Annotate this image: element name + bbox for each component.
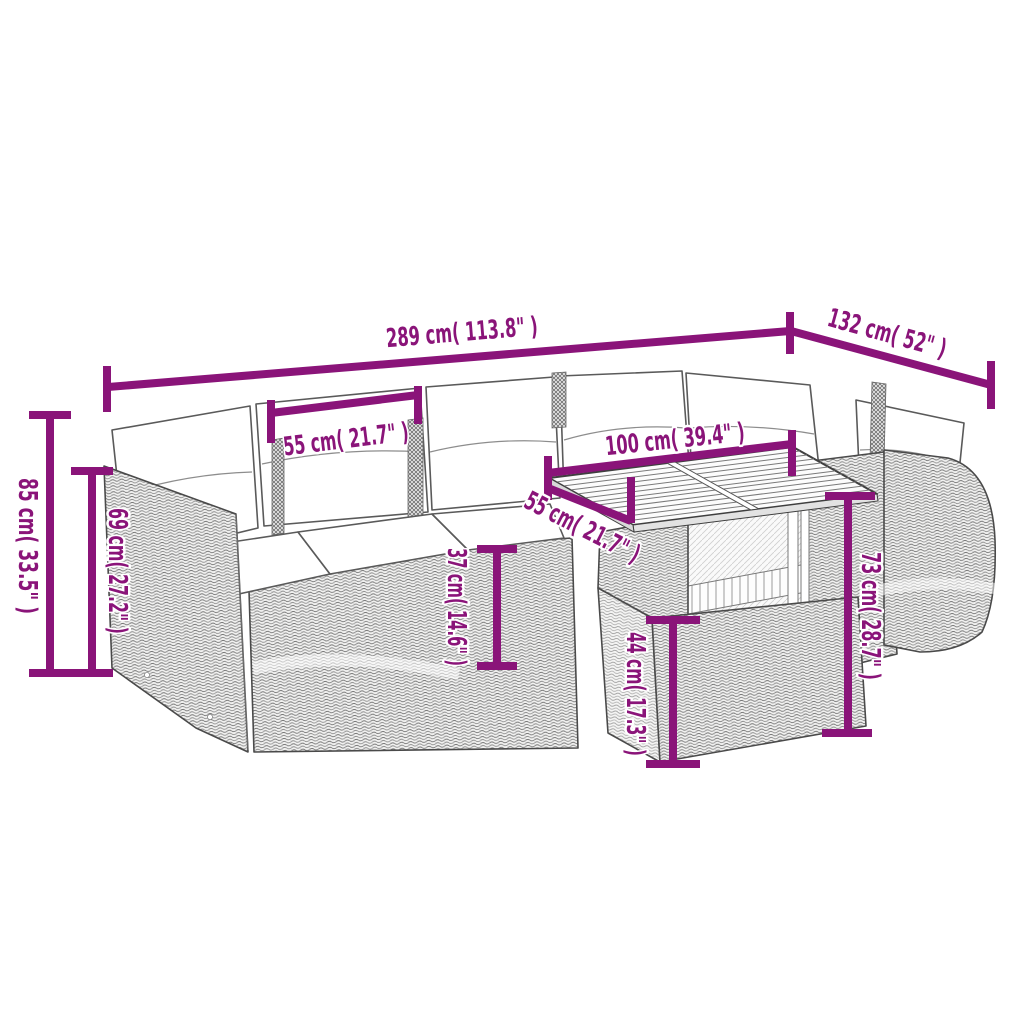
inner-post bbox=[801, 501, 809, 613]
strap bbox=[272, 438, 284, 535]
inner-post bbox=[788, 503, 798, 615]
dimension-sofa-side-depth: 132 cm( 52" ) bbox=[791, 303, 991, 409]
table-height-label: 73 cm( 28.7" ) bbox=[855, 552, 885, 680]
rivet bbox=[207, 714, 212, 719]
diagram-canvas: 289 cm( 113.8" ) 132 cm( 52" ) 55 cm( 21… bbox=[0, 0, 1024, 1024]
table-base-height-label: 44 cm( 17.3" ) bbox=[620, 632, 650, 756]
product-dimension-diagram: 289 cm( 113.8" ) 132 cm( 52" ) 55 cm( 21… bbox=[0, 0, 1024, 1024]
right-arm bbox=[884, 450, 995, 652]
dimension-sofa-height: 85 cm( 33.5" ) bbox=[12, 415, 71, 673]
rivet bbox=[144, 672, 149, 677]
backrest-height-label: 69 cm( 27.2" ) bbox=[102, 508, 132, 634]
seat-height-label: 37 cm( 14.6" ) bbox=[441, 548, 471, 666]
strap bbox=[552, 372, 566, 428]
sofa-width-label: 289 cm( 113.8" ) bbox=[385, 312, 539, 354]
sofa-height-label: 85 cm( 33.5" ) bbox=[12, 478, 42, 614]
